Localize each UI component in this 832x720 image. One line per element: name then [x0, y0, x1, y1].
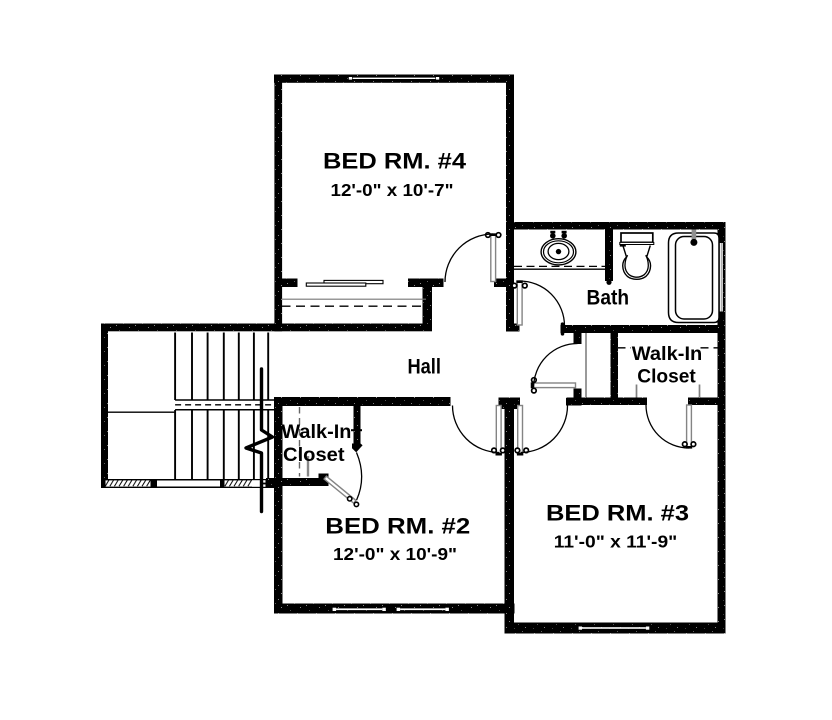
- svg-text:Closet: Closet: [283, 445, 345, 466]
- svg-text:BED RM. #2: BED RM. #2: [325, 514, 470, 539]
- svg-text:Walk-In: Walk-In: [281, 422, 351, 443]
- svg-text:BED RM. #4: BED RM. #4: [323, 149, 467, 174]
- svg-text:Hall: Hall: [407, 356, 441, 379]
- svg-text:11'-0" x 11'-9": 11'-0" x 11'-9": [554, 532, 678, 552]
- svg-text:Bath: Bath: [587, 287, 630, 310]
- svg-text:Closet: Closet: [637, 367, 696, 388]
- svg-text:12'-0" x 10'-7": 12'-0" x 10'-7": [331, 180, 454, 200]
- svg-text:12'-0" x 10'-9": 12'-0" x 10'-9": [333, 544, 457, 564]
- svg-text:Walk-In: Walk-In: [632, 344, 703, 365]
- svg-text:BED RM. #3: BED RM. #3: [546, 501, 689, 526]
